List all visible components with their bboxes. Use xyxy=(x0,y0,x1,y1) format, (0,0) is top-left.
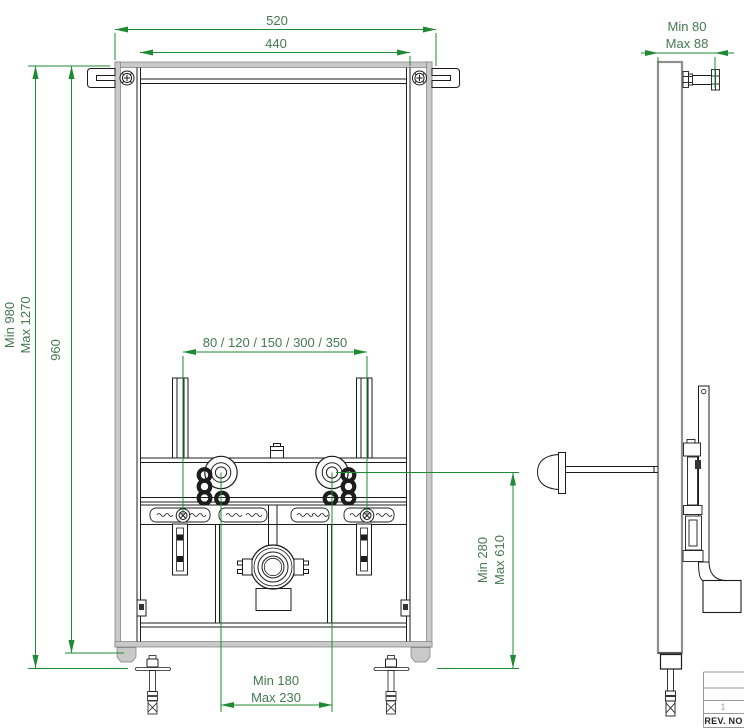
drain-clamp-left xyxy=(243,559,253,575)
frame-linework xyxy=(88,68,460,715)
frame-left-column xyxy=(115,62,121,647)
crossbar-bolt xyxy=(271,447,284,459)
dim-height-max: Max 1270 xyxy=(18,296,33,353)
dim-drain-min: Min 180 xyxy=(253,673,299,688)
dim-drain-max: Max 230 xyxy=(251,690,301,705)
rev-number-label: REV. NO xyxy=(704,716,742,726)
dim-bracket-spacing: 80 / 120 / 150 / 300 / 350 xyxy=(203,335,348,350)
side-column xyxy=(658,62,682,653)
wall-bolt xyxy=(683,70,720,91)
anchor-bolt-left xyxy=(136,656,171,715)
frame-left-foot xyxy=(117,648,136,663)
latch-left xyxy=(137,600,146,616)
dim-width-inner: 440 xyxy=(265,36,287,51)
threaded-rod-right xyxy=(357,378,373,458)
rev-number-value: 1 xyxy=(721,703,726,712)
wall-hook-left xyxy=(88,69,116,88)
threaded-rod-left xyxy=(173,378,189,458)
dim-depth-max: Max 88 xyxy=(666,36,709,51)
frame-right-column xyxy=(427,62,433,647)
dim-width-outer: 520 xyxy=(266,13,288,28)
dimension-labels: 520 440 Min 980 Max 1270 960 80 / 120 / … xyxy=(2,13,708,705)
frame-right-foot xyxy=(411,648,430,663)
corner-screw-left xyxy=(120,71,134,85)
anchor-bolt-right xyxy=(374,656,409,715)
side-view xyxy=(538,62,742,716)
drain-outlet-box xyxy=(256,589,291,611)
title-block: 1 REV. NO xyxy=(704,672,744,728)
dimension-annotations: 520 440 Min 980 Max 1270 960 80 / 120 / … xyxy=(2,13,734,712)
wall-hook-right xyxy=(432,69,460,88)
drain-elbow xyxy=(699,562,742,613)
frame-top-rail xyxy=(115,62,432,68)
slot-bracket-left xyxy=(173,524,188,575)
corner-screw-right xyxy=(413,71,427,85)
dim-connection-min: Min 280 xyxy=(475,537,490,583)
side-foot xyxy=(661,655,682,717)
dim-depth-min: Min 80 xyxy=(667,19,706,34)
dimension-lines xyxy=(28,30,734,713)
slot-bracket-right xyxy=(357,524,372,575)
wall-plug-rod xyxy=(538,453,659,494)
frame-bottom-rail xyxy=(115,642,432,648)
technical-drawing-canvas: 520 440 Min 980 Max 1270 960 80 / 120 / … xyxy=(0,0,744,728)
dim-connection-max: Max 610 xyxy=(492,535,507,585)
drain-clamp-right xyxy=(294,559,304,575)
latch-right xyxy=(401,600,410,616)
cad-drawing-page: 520 440 Min 980 Max 1270 960 80 / 120 / … xyxy=(0,0,744,728)
dim-height-min: Min 980 xyxy=(2,302,17,348)
dim-height-frame: 960 xyxy=(48,339,63,361)
front-view xyxy=(88,62,460,714)
